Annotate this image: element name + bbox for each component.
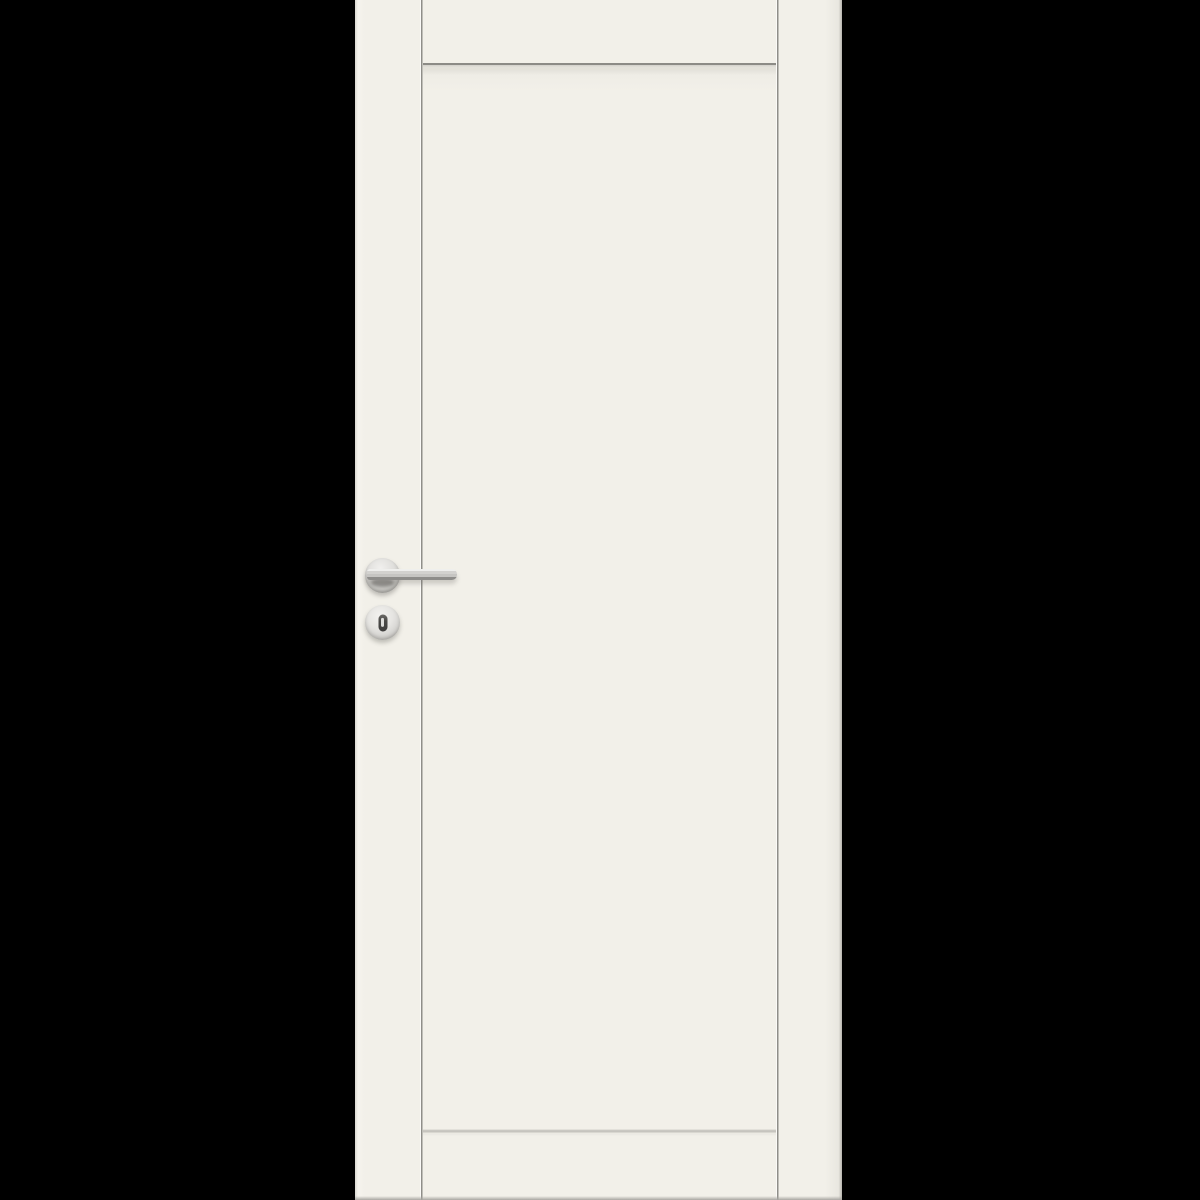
key-slot (381, 618, 384, 627)
keyhole (378, 614, 387, 631)
bottom-rail-groove (423, 1129, 776, 1136)
door-panel (423, 66, 776, 1129)
keyhole-escutcheon (365, 605, 400, 640)
door-leaf (355, 0, 842, 1200)
photo-background (0, 0, 1200, 1200)
door-bottom-edge (355, 1196, 842, 1200)
stile-groove-right (776, 0, 779, 1200)
lever-handle (367, 569, 457, 580)
